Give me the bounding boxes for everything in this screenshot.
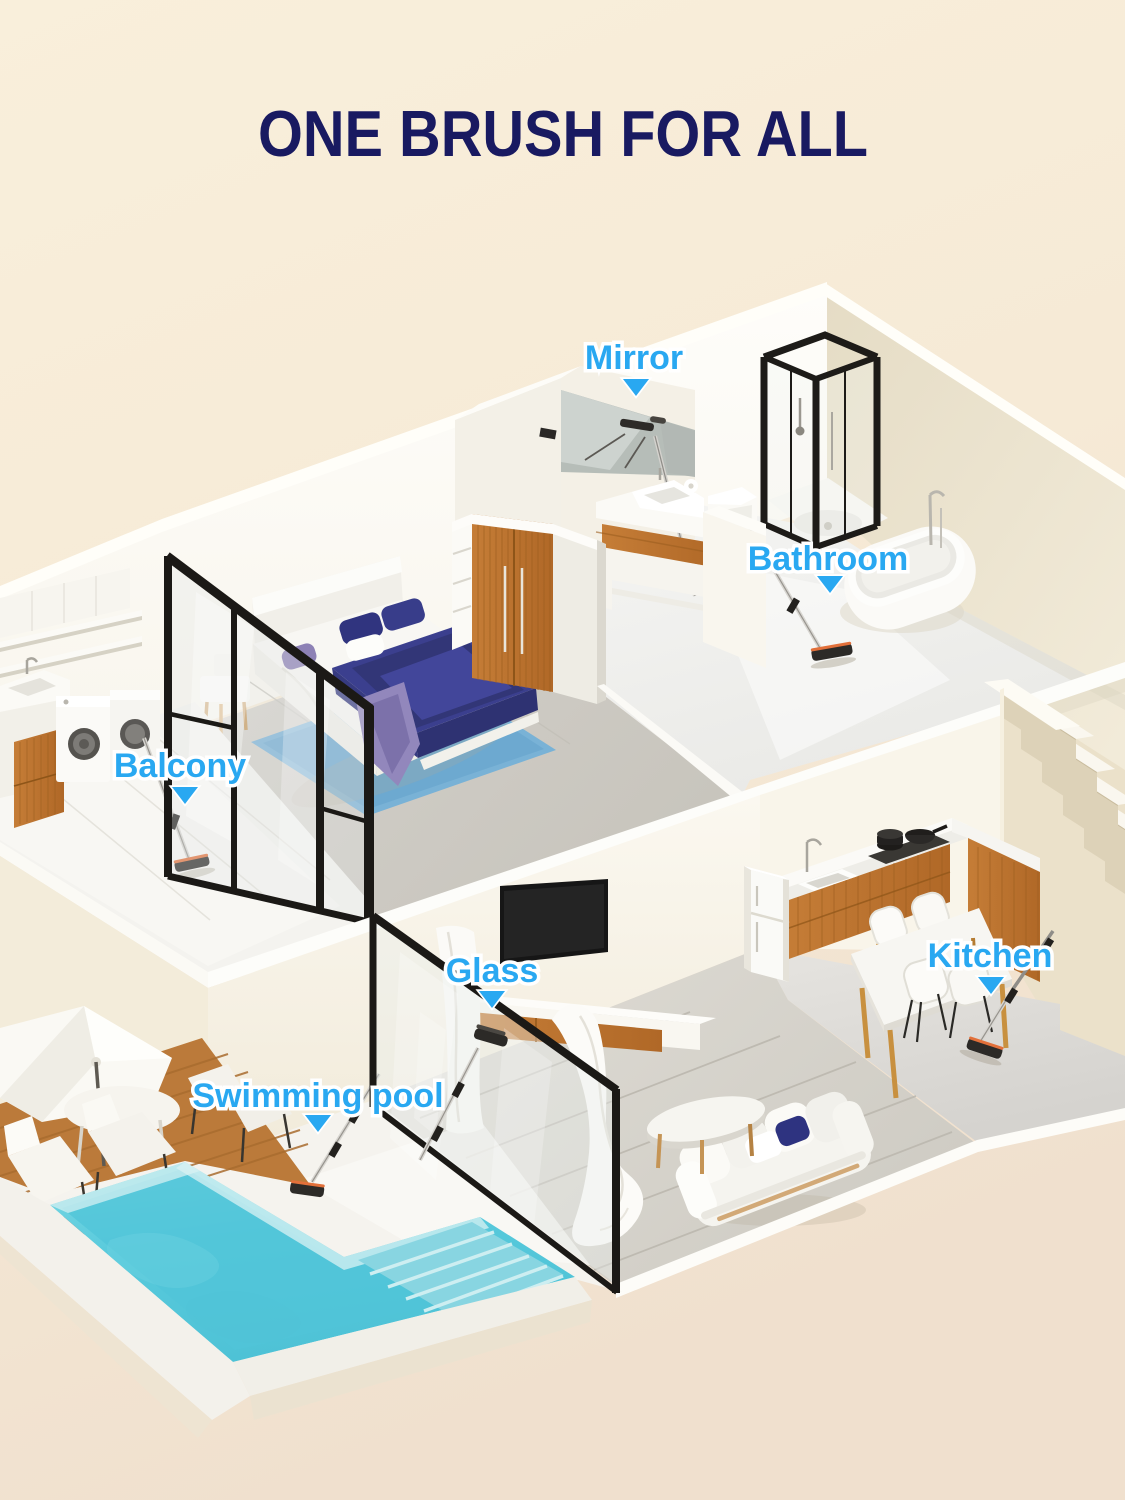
svg-text:ONE BRUSH FOR ALL: ONE BRUSH FOR ALL: [258, 97, 868, 170]
svg-text:Mirror: Mirror: [585, 339, 683, 377]
svg-text:Balcony: Balcony: [114, 747, 246, 785]
svg-text:Glass: Glass: [446, 952, 539, 990]
svg-text:Bathroom: Bathroom: [748, 540, 909, 578]
svg-text:Swimming pool: Swimming pool: [192, 1077, 443, 1115]
svg-text:Kitchen: Kitchen: [928, 937, 1053, 975]
